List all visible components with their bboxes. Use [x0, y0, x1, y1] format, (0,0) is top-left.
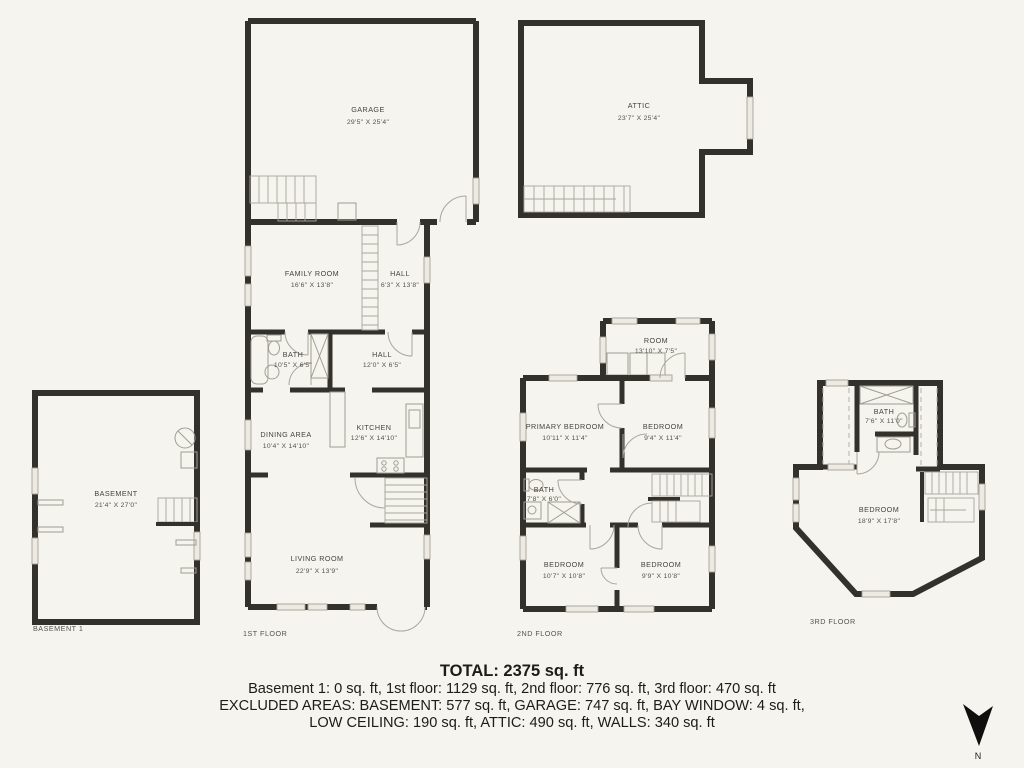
sink — [524, 502, 541, 519]
first-floor-inner-walls — [248, 332, 427, 525]
room-dims-hall-lower: 12'0" X 6'5" — [363, 362, 402, 369]
room-dims-basement: 21'4" X 27'0" — [95, 502, 138, 509]
garage-plan: GARAGE 29'5" X 25'4" — [248, 21, 479, 222]
room-label-primary-bedroom: PRIMARY BEDROOM — [526, 422, 604, 431]
third-floor-plan: BATH 7'6" X 11'0" BEDROOM 18'9" X 17'8" … — [793, 380, 985, 626]
room-label-room-2f: ROOM — [644, 336, 668, 345]
room-label-hall-upper: HALL — [390, 269, 410, 278]
garage-windows — [473, 178, 479, 204]
first-floor-stairs-down — [385, 478, 427, 523]
first-floor-stairs-up — [362, 226, 378, 330]
second-floor-plan: ROOM 13'10" X 7'5" PRIMARY BEDROOM 10'11… — [517, 318, 715, 638]
room-dims-bedroom-2f-sw: 10'7" X 10'8" — [543, 573, 586, 580]
toilet-tank — [267, 335, 281, 341]
floorplan-canvas: GARAGE 29'5" X 25'4" ATTIC 23'7" X 25'4" — [0, 0, 1024, 768]
floor-label-basement: BASEMENT 1 — [33, 624, 83, 633]
kitchen-peninsula — [330, 392, 345, 447]
compass-label: N — [975, 751, 982, 761]
summary-line-floors: Basement 1: 0 sq. ft, 1st floor: 1129 sq… — [0, 681, 1024, 698]
floor-label-first: 1ST FLOOR — [243, 629, 287, 638]
room-label-dining: DINING AREA — [260, 430, 311, 439]
summary-line-excluded-1: EXCLUDED AREAS: BASEMENT: 577 sq. ft, GA… — [0, 698, 1024, 715]
room-dims-bath-2: 7'8" X 6'0" — [527, 496, 561, 503]
attic-window — [747, 97, 753, 139]
bathroom-1-fixtures — [251, 334, 328, 384]
room-label-hall-lower: HALL — [372, 350, 392, 359]
room-dims-bedroom-2f-se: 9'9" X 10'8" — [642, 573, 681, 580]
stove — [377, 458, 404, 473]
room-label-attic: ATTIC — [628, 101, 650, 110]
third-floor-inner-walls — [820, 383, 940, 469]
first-floor-outer-walls — [248, 222, 427, 607]
room-label-bedroom-2f-sw: BEDROOM — [544, 560, 584, 569]
attic-stairs — [524, 186, 630, 212]
room-label-bath-1: BATH — [283, 350, 303, 359]
room-dims-primary-bedroom: 10'11" X 11'4" — [542, 435, 588, 442]
room-dims-hall-upper: 6'3" X 13'8" — [381, 282, 420, 289]
room-label-bedroom-3f: BEDROOM — [859, 505, 899, 514]
second-floor-stairs — [648, 474, 712, 522]
room-dims-bedroom-2f-ne: 9'4" X 11'4" — [644, 435, 682, 442]
third-floor-stairs — [922, 472, 978, 522]
room-dims-room-2f: 13'10" X 7'5" — [635, 348, 678, 355]
room-label-living: LIVING ROOM — [291, 554, 344, 563]
room-dims-bath-3: 7'6" X 11'0" — [865, 418, 903, 425]
room-dims-kitchen: 12'6" X 14'10" — [351, 435, 398, 442]
garage-door — [440, 196, 466, 222]
room-label-family-room: FAMILY ROOM — [285, 269, 339, 278]
summary-total: TOTAL: 2375 sq. ft — [0, 661, 1024, 681]
room-dims-bath-1: 10'5" X 6'5" — [274, 362, 313, 369]
room-label-bedroom-2f-se: BEDROOM — [641, 560, 681, 569]
room-dims-dining: 10'4" X 14'10" — [263, 443, 310, 450]
french-door — [377, 607, 425, 631]
summary-line-excluded-2: LOW CEILING: 190 sq. ft, ATTIC: 490 sq. … — [0, 715, 1024, 732]
toilet-bowl — [269, 341, 280, 355]
room-label-bedroom-2f-ne: BEDROOM — [643, 422, 683, 431]
floor-label-third: 3RD FLOOR — [810, 617, 856, 626]
room-dims-family-room: 16'6" X 13'8" — [291, 282, 334, 289]
third-floor-doors — [857, 452, 879, 474]
room-dims-attic: 23'7" X 25'4" — [618, 115, 661, 122]
first-floor-plan: FAMILY ROOM 16'6" X 13'8" HALL 6'3" X 13… — [243, 222, 430, 638]
second-floor-room-closets — [607, 353, 665, 375]
room-dims-living: 22'9" X 13'9" — [296, 568, 339, 575]
low-ceiling-dashes — [823, 388, 937, 466]
floorplan-page: { "colors": { "background": "#f5f4ee", "… — [0, 0, 1024, 768]
room-dims-bedroom-3f: 18'9" X 17'8" — [858, 518, 901, 525]
room-label-bath-2: BATH — [534, 485, 554, 494]
room-label-garage: GARAGE — [351, 105, 384, 114]
attic-plan: ATTIC 23'7" X 25'4" — [521, 23, 753, 215]
room-dims-garage: 29'5" X 25'4" — [347, 119, 390, 126]
basement-stairs — [156, 498, 198, 524]
room-label-bath-3: BATH — [874, 407, 894, 416]
kitchen-sink — [409, 410, 420, 428]
floor-label-second: 2ND FLOOR — [517, 629, 563, 638]
basement-fixtures — [38, 428, 197, 573]
garage-stairs — [250, 176, 316, 221]
kitchen-fixtures — [330, 392, 423, 473]
bathtub — [251, 336, 268, 384]
basement-plan: BASEMENT 21'4" X 27'0" BASEMENT 1 — [32, 393, 200, 633]
area-summary: TOTAL: 2375 sq. ft Basement 1: 0 sq. ft,… — [0, 661, 1024, 733]
room-label-kitchen: KITCHEN — [357, 423, 392, 432]
basement-windows — [32, 468, 200, 564]
room-label-basement: BASEMENT — [94, 489, 137, 498]
garage-step — [338, 203, 356, 220]
